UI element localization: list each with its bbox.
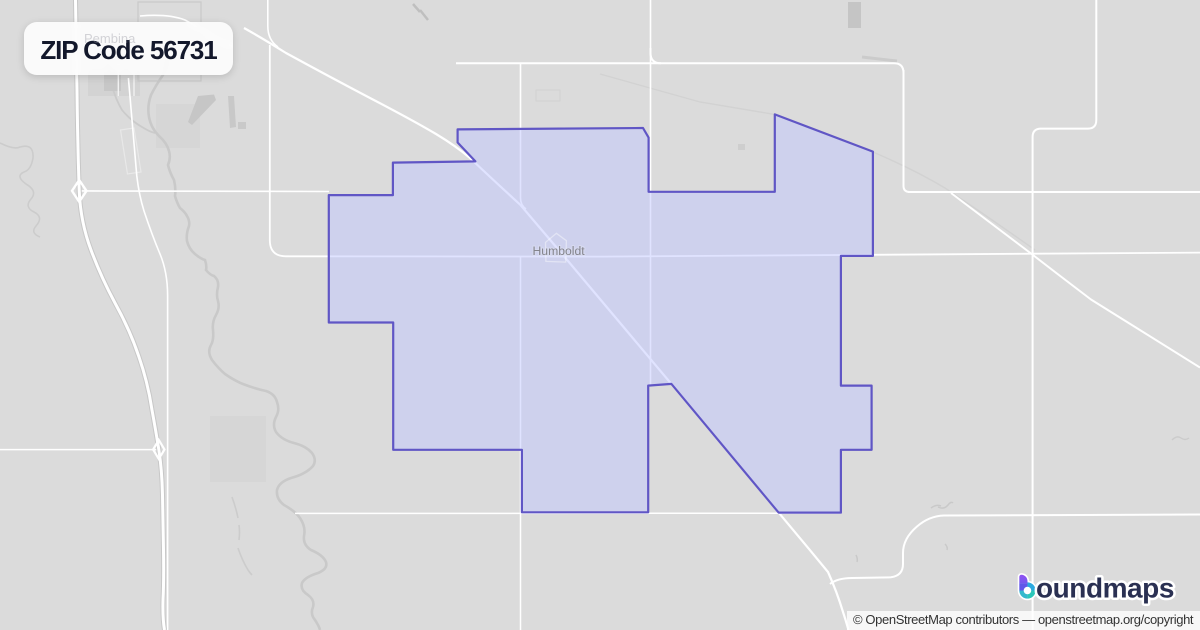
svg-text:Humboldt: Humboldt [533, 244, 586, 258]
svg-text:oundmaps: oundmaps [1036, 573, 1174, 604]
